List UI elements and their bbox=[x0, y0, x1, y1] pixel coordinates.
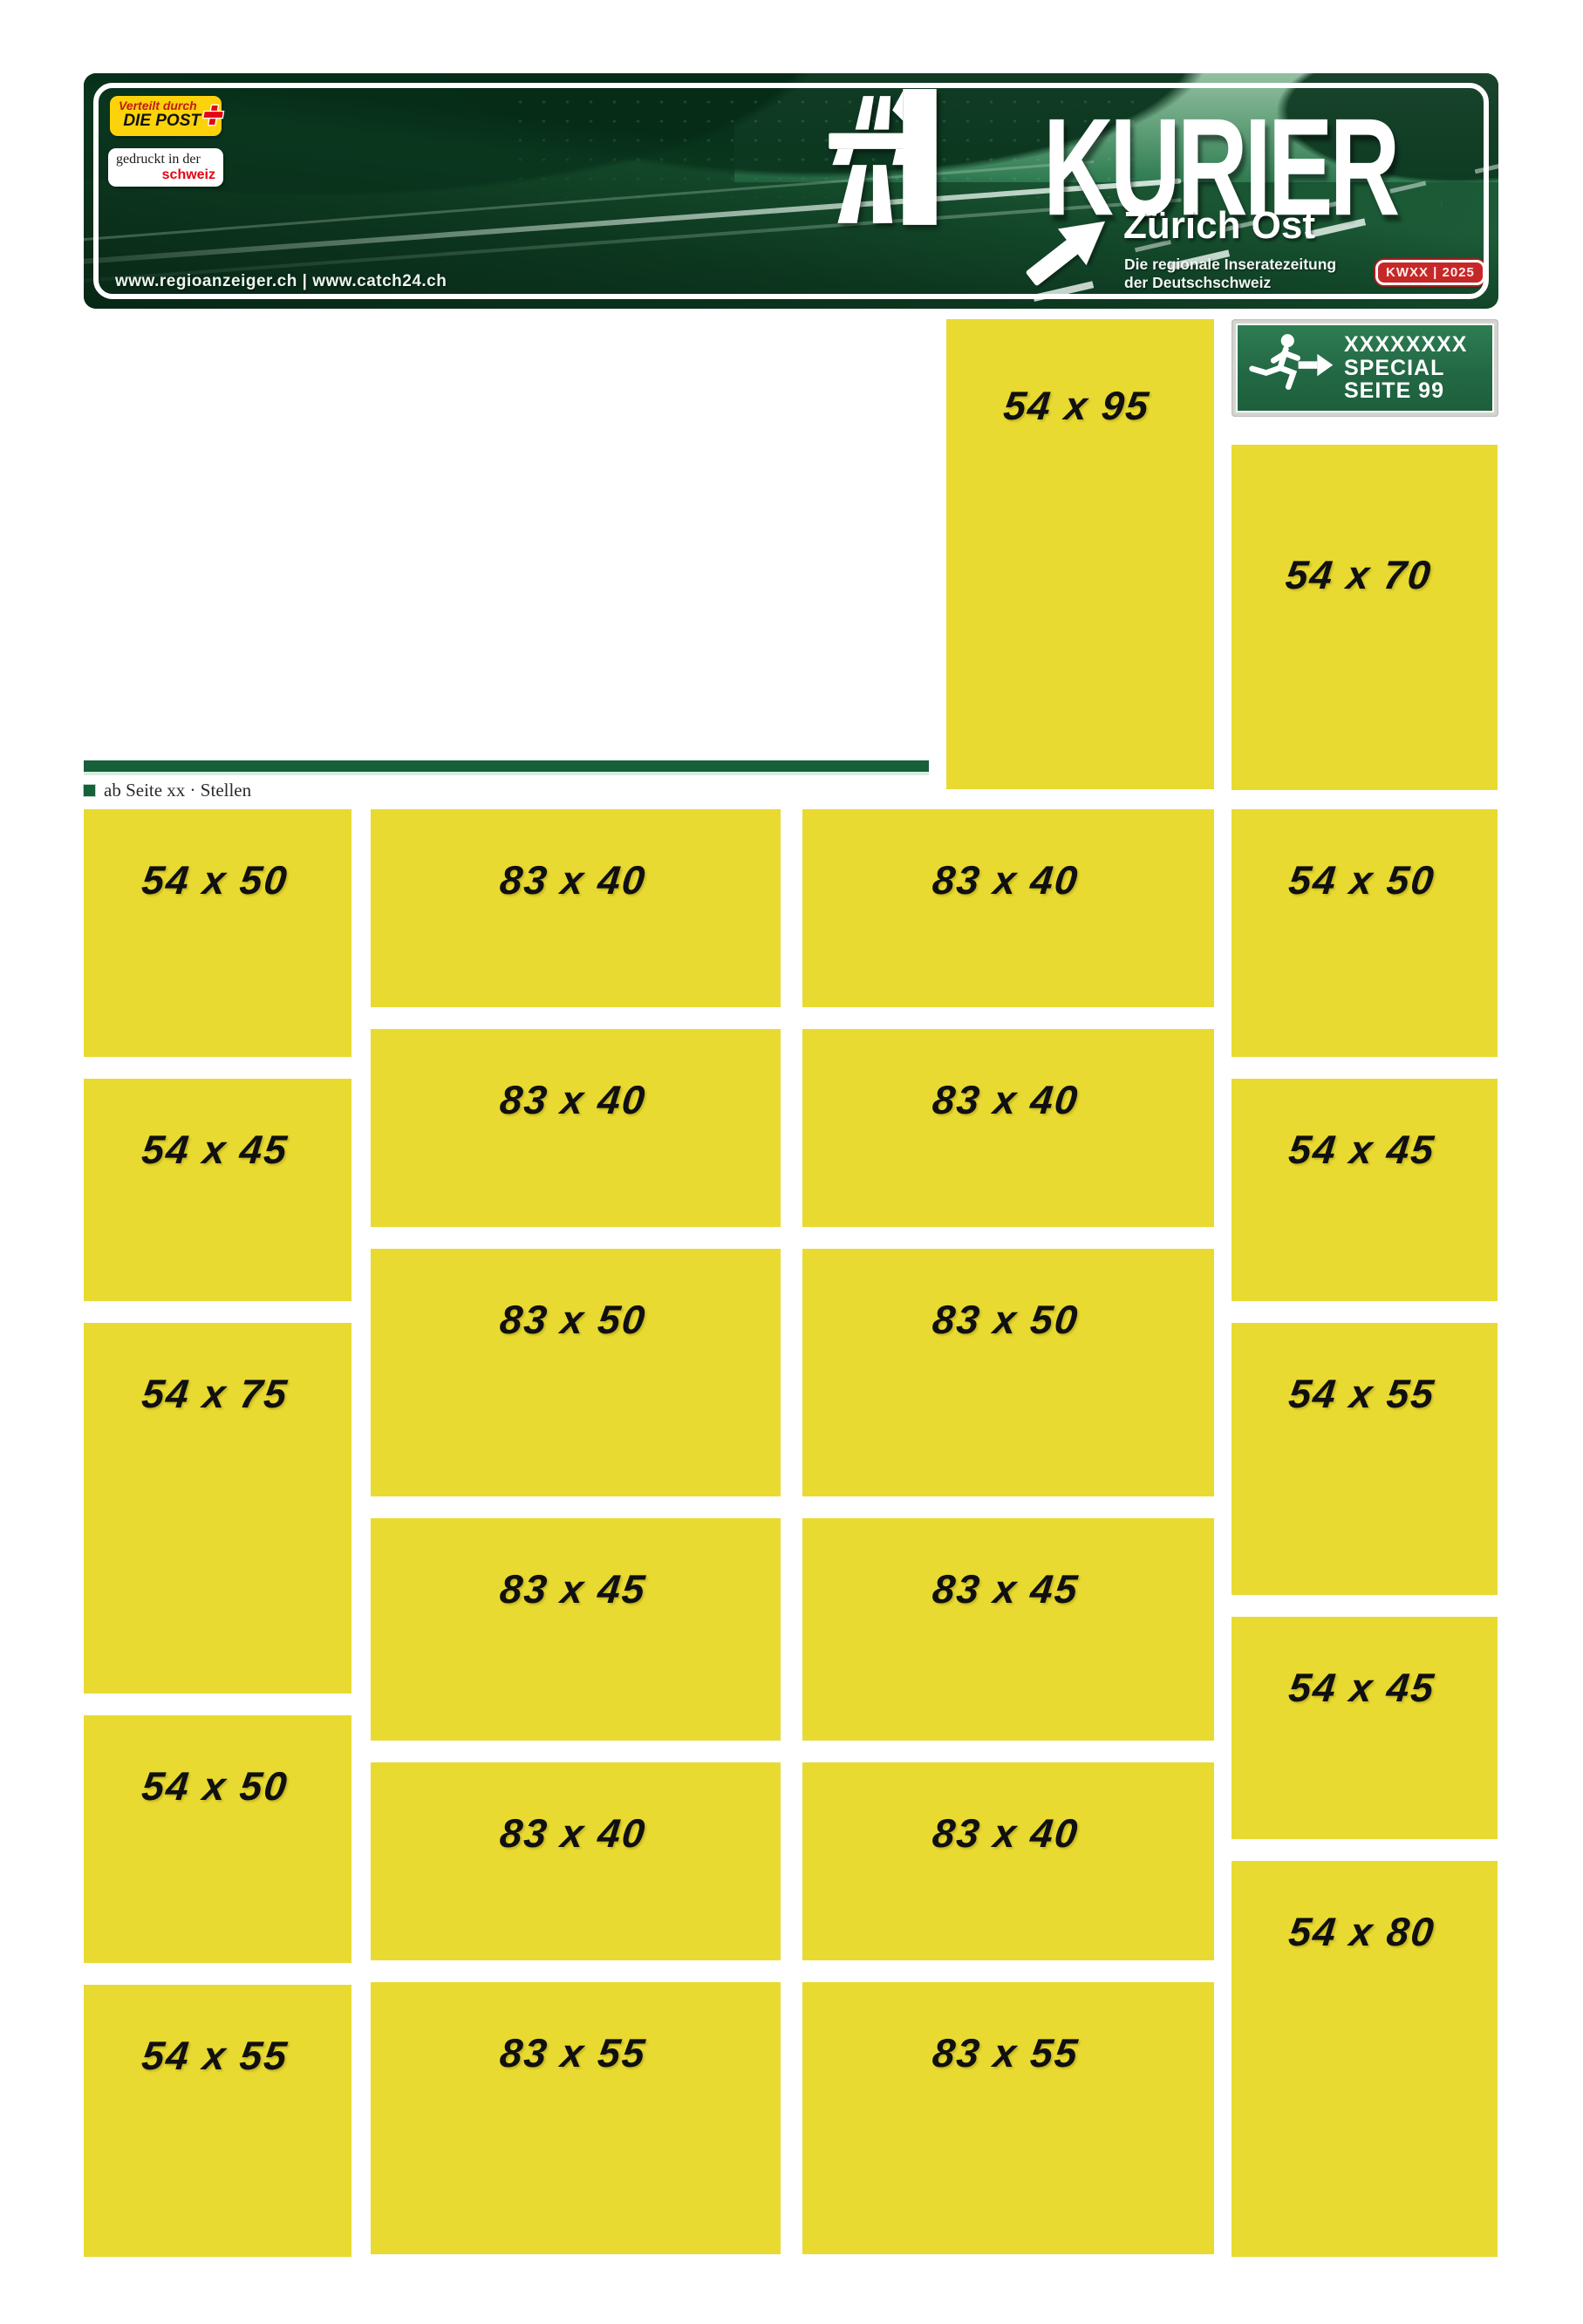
ad-slot-label: 54 x 55 bbox=[1226, 1323, 1502, 1417]
ad-slot-label: 83 x 40 bbox=[797, 1762, 1218, 1857]
ad-slot-54x55: 54 x 55 bbox=[1232, 1323, 1498, 1595]
ad-slot-83x45: 83 x 45 bbox=[371, 1518, 781, 1741]
ad-slot-54x50: 54 x 50 bbox=[1232, 809, 1498, 1057]
printed-badge-line1: gedruckt in der bbox=[116, 152, 215, 167]
banner-tagline: Die regionale Inseratezeitung der Deutsc… bbox=[1124, 256, 1336, 291]
ad-slot-83x50: 83 x 50 bbox=[371, 1249, 781, 1496]
ad-slot-label: 54 x 70 bbox=[1224, 445, 1505, 598]
ad-slot-label: 83 x 45 bbox=[797, 1518, 1218, 1612]
ad-slot-label: 83 x 45 bbox=[365, 1518, 785, 1612]
ad-slot-label: 83 x 40 bbox=[365, 1762, 785, 1857]
ad-slot-label: 54 x 45 bbox=[78, 1079, 356, 1173]
ad-slot-label: 54 x 50 bbox=[78, 1715, 356, 1809]
ad-slot-label: 83 x 50 bbox=[797, 1249, 1218, 1343]
ad-slot-54x50: 54 x 50 bbox=[84, 1715, 351, 1963]
ad-slot-54x55: 54 x 55 bbox=[84, 1985, 351, 2257]
ad-slot-54x75: 54 x 75 bbox=[84, 1323, 351, 1694]
section-label-row: ab Seite xx · Stellen bbox=[84, 780, 251, 801]
ad-slot-label: 83 x 40 bbox=[365, 1029, 785, 1123]
ad-slot-54x50: 54 x 50 bbox=[84, 809, 351, 1057]
distribution-badge: Verteilt durch DIE POST bbox=[110, 96, 222, 136]
ad-slot-54x45: 54 x 45 bbox=[1232, 1617, 1498, 1839]
ad-slot-label: 83 x 40 bbox=[365, 809, 785, 903]
ad-slot-label: 54 x 95 bbox=[940, 319, 1219, 429]
exit-sign-panel: XXXXXXXX SPECIAL SEITE 99 bbox=[1236, 324, 1494, 412]
ad-slot-54x45: 54 x 45 bbox=[84, 1079, 351, 1301]
ad-slot-83x50: 83 x 50 bbox=[802, 1249, 1214, 1496]
ad-slot-83x45: 83 x 45 bbox=[802, 1518, 1214, 1741]
ad-slot-label: 54 x 75 bbox=[78, 1323, 356, 1417]
region-title: Zürich Ost bbox=[1123, 204, 1315, 248]
swiss-post-cross-icon bbox=[201, 103, 225, 132]
exit-sign-text: XXXXXXXX SPECIAL SEITE 99 bbox=[1344, 333, 1467, 403]
ad-slot-83x40: 83 x 40 bbox=[802, 809, 1214, 1007]
printed-in-switzerland-badge: gedruckt in der schweiz bbox=[108, 148, 223, 187]
ne-arrow-icon bbox=[1013, 204, 1123, 299]
ad-slot-label: 54 x 50 bbox=[78, 809, 356, 903]
tagline-line2: der Deutschschweiz bbox=[1124, 274, 1336, 292]
masthead-banner: Verteilt durch DIE POST gedruckt in der … bbox=[84, 73, 1498, 309]
tagline-line1: Die regionale Inseratezeitung bbox=[1124, 256, 1336, 274]
page: Verteilt durch DIE POST gedruckt in der … bbox=[0, 0, 1583, 2324]
printed-badge-line2: schweiz bbox=[116, 167, 215, 183]
ad-slot-label: 54 x 50 bbox=[1226, 809, 1502, 903]
exit-sign-line3: SEITE 99 bbox=[1344, 379, 1467, 403]
special-exit-sign: XXXXXXXX SPECIAL SEITE 99 bbox=[1232, 319, 1498, 417]
ad-slot-83x55: 83 x 55 bbox=[802, 1982, 1214, 2254]
ad-slot-label: 83 x 40 bbox=[797, 1029, 1218, 1123]
ad-slot-label: 54 x 55 bbox=[78, 1985, 356, 2079]
autobahn-icon bbox=[815, 84, 947, 238]
ad-slot-83x55: 83 x 55 bbox=[371, 1982, 781, 2254]
ad-slot-54x80: 54 x 80 bbox=[1232, 1861, 1498, 2257]
banner-urls: www.regioanzeiger.ch | www.catch24.ch bbox=[115, 272, 447, 291]
ad-slot-label: 83 x 55 bbox=[797, 1982, 1218, 2076]
ad-slot-83x40: 83 x 40 bbox=[802, 1029, 1214, 1227]
ad-slot-83x40: 83 x 40 bbox=[371, 1762, 781, 1960]
ad-slot-label: 83 x 55 bbox=[365, 1982, 785, 2076]
ad-slot-label: 83 x 50 bbox=[365, 1249, 785, 1343]
ad-slot-label: 54 x 45 bbox=[1226, 1079, 1502, 1173]
ad-slot-83x40: 83 x 40 bbox=[802, 1762, 1214, 1960]
section-bullet-marker bbox=[84, 785, 95, 796]
exit-sign-line1: XXXXXXXX bbox=[1344, 333, 1467, 357]
exit-sign-line2: SPECIAL bbox=[1344, 357, 1467, 380]
exit-runner-icon bbox=[1246, 331, 1337, 406]
ad-slot-label: 54 x 45 bbox=[1226, 1617, 1502, 1711]
ad-slot-54x95: 54 x 95 bbox=[946, 319, 1214, 789]
section-label: ab Seite xx · Stellen bbox=[104, 780, 251, 801]
distribution-badge-line1: Verteilt durch bbox=[119, 99, 213, 112]
ad-slot-54x45: 54 x 45 bbox=[1232, 1079, 1498, 1301]
week-badge: KWXX | 2025 bbox=[1375, 260, 1485, 285]
ad-slot-label: 54 x 80 bbox=[1226, 1861, 1502, 1955]
distribution-badge-line2: DIE POST bbox=[119, 112, 201, 130]
ad-slot-label: 83 x 40 bbox=[797, 809, 1218, 903]
ad-slot-83x40: 83 x 40 bbox=[371, 809, 781, 1007]
ad-slot-54x70: 54 x 70 bbox=[1232, 445, 1498, 790]
section-divider-bar bbox=[84, 760, 929, 772]
ad-slot-83x40: 83 x 40 bbox=[371, 1029, 781, 1227]
